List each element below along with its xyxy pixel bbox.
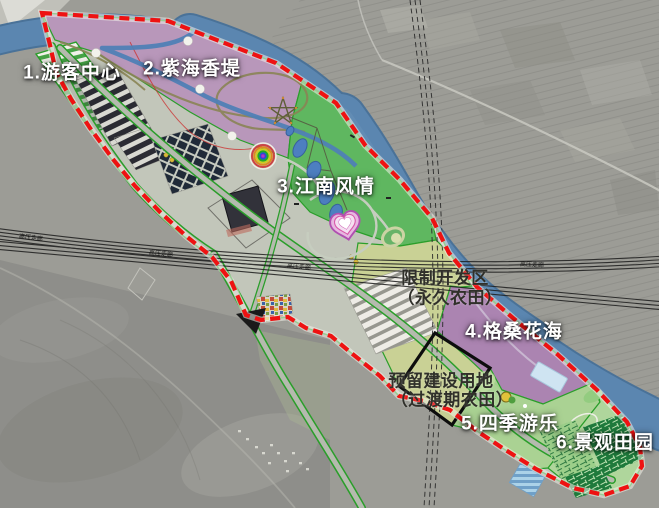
master-plan-map: 1.游客中心 2.紫海香堤 3.江南风情 4.格桑花海 5.四季游乐 6.景观田…	[0, 0, 659, 508]
map-canvas	[0, 0, 659, 508]
